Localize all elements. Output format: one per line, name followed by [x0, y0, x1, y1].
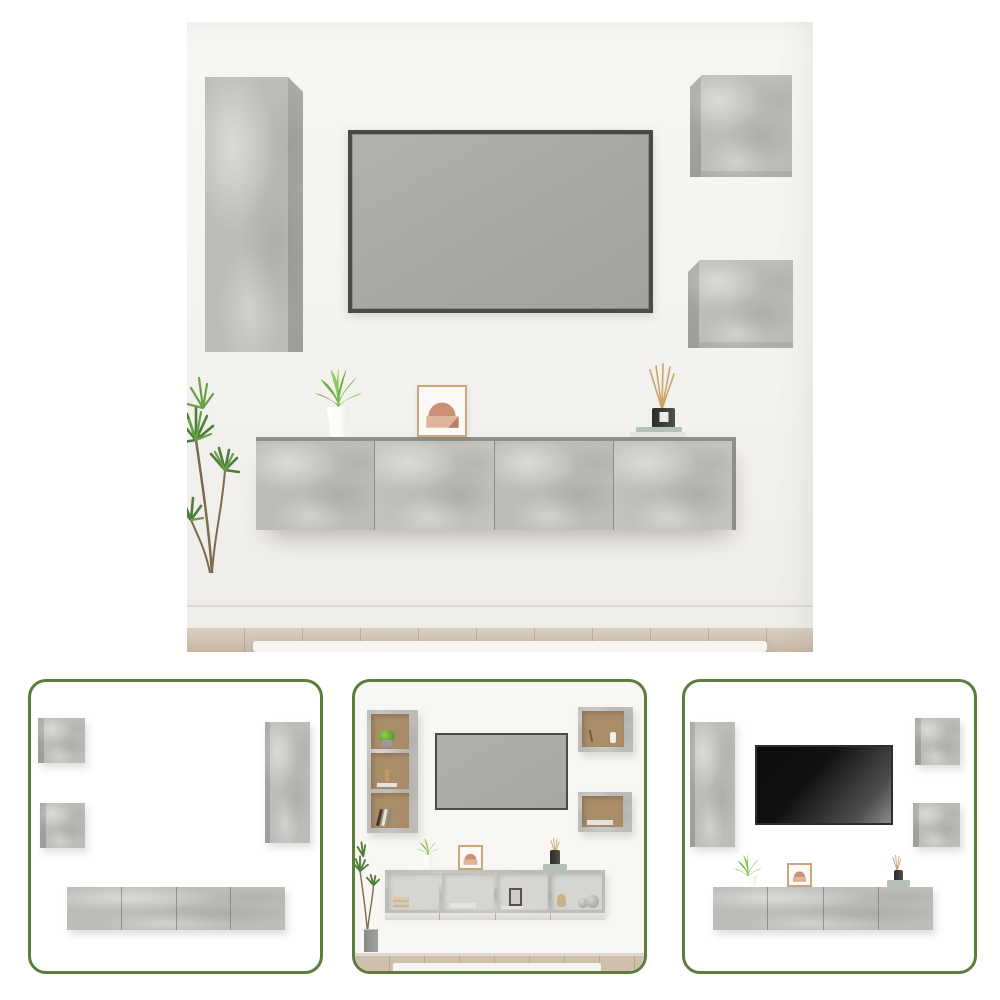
framed-photo: [509, 888, 522, 906]
tall-open-shelf: [367, 710, 418, 833]
thumbnail-front-view[interactable]: [28, 679, 323, 974]
shelf-cell: [371, 714, 409, 749]
tv-bench: [713, 887, 933, 930]
picture-frame: [787, 863, 812, 887]
picture-frame: [458, 845, 483, 870]
product-gallery: [0, 0, 1000, 1000]
open-cube-bottom: [578, 792, 632, 832]
bench-cell: [551, 873, 602, 910]
bench-door: [67, 887, 122, 930]
tv-bench: [67, 887, 285, 930]
open-cube-top: [578, 707, 633, 752]
bench-door: [231, 887, 285, 930]
bench-door: [177, 887, 232, 930]
bench-cell: [388, 873, 439, 910]
diffuser-bottle: [550, 850, 560, 865]
wall-cube-bottom: [40, 803, 85, 848]
bench-door: [879, 887, 933, 930]
books: [587, 820, 613, 825]
diffuser-bottle: [652, 408, 675, 428]
wall-cube-bottom: [913, 803, 960, 847]
diffuser-reeds: [646, 363, 678, 411]
floor-plant: [352, 834, 387, 934]
potted-plant: [733, 852, 763, 878]
tv-screen: [348, 130, 653, 313]
reed-diffuser: [628, 363, 688, 437]
bench-door: [824, 887, 879, 930]
bench-cell: [442, 873, 493, 910]
leaning-book: [387, 809, 393, 826]
thumbnail-tv-view[interactable]: [682, 679, 977, 974]
tv-screen-dark: [755, 745, 893, 825]
figurine: [385, 769, 389, 782]
bench-door: [614, 441, 732, 530]
tv-bench: [256, 437, 736, 530]
shelf-cell: [371, 753, 409, 788]
tall-wall-cabinet: [265, 722, 310, 843]
mini-pot: [382, 740, 392, 747]
tv-screen: [435, 733, 568, 810]
bench-door: [375, 441, 494, 530]
books: [377, 783, 397, 787]
white-vase: [610, 732, 616, 743]
open-tv-bench: [385, 870, 605, 913]
shelf-cell: [371, 793, 409, 828]
floor-planter: [364, 929, 378, 952]
wall-cube-top: [690, 75, 792, 177]
books: [450, 903, 476, 908]
stacked-book: [887, 880, 910, 887]
tall-wall-cabinet: [205, 77, 303, 352]
tall-wall-cabinet: [690, 722, 735, 847]
frame-art: [460, 847, 481, 868]
rug: [253, 641, 767, 652]
wall-cube-top: [38, 718, 85, 763]
plant-pot: [745, 876, 758, 887]
picture-frame: [417, 385, 467, 437]
floor-plant: [187, 360, 243, 575]
branch-decor: [589, 730, 593, 742]
wall-cube-bottom: [688, 260, 793, 348]
bench-door: [122, 887, 177, 930]
plant-pot: [423, 855, 433, 870]
sphere-decor: [586, 895, 599, 908]
bench-door: [256, 441, 375, 530]
rug: [393, 963, 601, 974]
device: [501, 906, 523, 909]
wall-cube-top: [915, 718, 960, 765]
diffuser-label: [659, 412, 668, 422]
bench-door: [713, 887, 768, 930]
urn-decor: [557, 894, 566, 907]
baseboard: [187, 605, 813, 630]
potted-plant: [312, 365, 365, 437]
plant-pot: [325, 407, 352, 437]
diffuser-reeds: [889, 855, 905, 871]
bench-door: [768, 887, 823, 930]
plant-leaves: [312, 365, 365, 409]
thumbnail-open-styled[interactable]: [352, 679, 647, 974]
towel-stack: [393, 897, 409, 908]
cube-interior: [582, 796, 623, 827]
stacked-book: [630, 432, 686, 437]
main-product-image[interactable]: [187, 22, 813, 652]
potted-plant: [416, 835, 440, 857]
cube-interior: [582, 711, 624, 747]
frame-art: [789, 865, 810, 885]
frame-art: [419, 387, 465, 435]
bench-cell: [497, 873, 548, 910]
bench-door: [495, 441, 614, 530]
open-door-flaps: [385, 913, 605, 920]
